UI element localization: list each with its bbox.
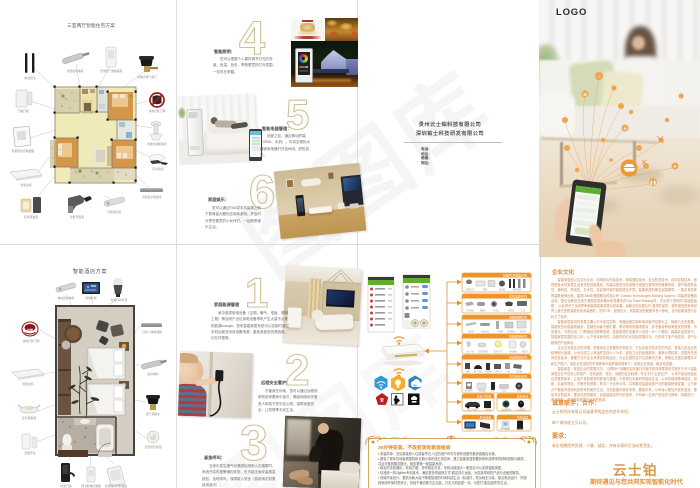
svg-text:智能窗帘电机: 智能窗帘电机 bbox=[67, 69, 84, 73]
svg-text:智能窗户机械手: 智能窗户机械手 bbox=[142, 195, 162, 199]
svg-text:红外转发器: 红外转发器 bbox=[22, 416, 36, 420]
svg-text:环境电器: 环境电器 bbox=[517, 416, 528, 420]
svg-text:机械手燃气阀门: 机械手燃气阀门 bbox=[137, 75, 157, 79]
svg-text:智能主机: 智能主机 bbox=[22, 382, 33, 386]
svg-text:智能开关: 智能开关 bbox=[24, 451, 35, 455]
svg-text:传感探测系列: 传感探测系列 bbox=[509, 355, 527, 360]
svg-text:智能场景控制面板: 智能场景控制面板 bbox=[12, 149, 35, 153]
svg-text:万能遥控器: 万能遥控器 bbox=[107, 210, 121, 214]
svg-text:智能门锁: 智能门锁 bbox=[60, 484, 71, 488]
svg-text:无线紧急按钮: 无线紧急按钮 bbox=[145, 445, 162, 449]
svg-text:影音设备: 影音设备 bbox=[480, 416, 491, 420]
svg-text:背景音乐系列: 背景音乐系列 bbox=[509, 374, 527, 379]
svg-text:智能水阀机械手: 智能水阀机械手 bbox=[147, 142, 167, 146]
svg-text:4G: 4G bbox=[413, 384, 418, 388]
svg-text:智能开窗器: 智能开窗器 bbox=[70, 215, 84, 219]
svg-text:智能照明系列: 智能照明系列 bbox=[509, 334, 527, 339]
svg-text:红外转发器: 红外转发器 bbox=[24, 215, 38, 219]
svg-text:无线燃气泄漏探测: 无线燃气泄漏探测 bbox=[100, 69, 123, 73]
svg-text:刷卡取电控制器: 刷卡取电控制器 bbox=[81, 484, 101, 488]
svg-text:安: 安 bbox=[380, 397, 384, 403]
svg-text:电动窗帘: 电动窗帘 bbox=[24, 76, 35, 80]
svg-text:电动窗帘电机: 电动窗帘电机 bbox=[58, 296, 75, 300]
svg-text:请勿打扰门牌: 请勿打扰门牌 bbox=[23, 339, 40, 343]
svg-text:智能LED灯泡: 智能LED灯泡 bbox=[111, 298, 128, 302]
svg-text:门磁门锁: 门磁门锁 bbox=[17, 109, 28, 113]
svg-text:☀: ☀ bbox=[623, 126, 627, 131]
svg-text:勿扰: 勿扰 bbox=[26, 327, 33, 332]
svg-text:三室两厅智能住宅方案: 三室两厅智能住宅方案 bbox=[67, 22, 115, 29]
svg-text:窗帘电机: 窗帘电机 bbox=[147, 372, 158, 376]
svg-text:监控系列: 监控系列 bbox=[517, 395, 528, 399]
svg-text:请勿打扰门牌: 请勿打扰门牌 bbox=[149, 109, 166, 113]
svg-text:智能开关插座系列: 智能开关插座系列 bbox=[503, 273, 527, 278]
svg-text:♪: ♪ bbox=[598, 74, 600, 79]
svg-text:燃气机械手: 燃气机械手 bbox=[146, 412, 160, 416]
svg-text:红外人体探测器: 红外人体探测器 bbox=[142, 330, 162, 334]
svg-text:智能酒店方案: 智能酒店方案 bbox=[73, 267, 107, 275]
svg-text:红外幕帘: 红外幕帘 bbox=[152, 167, 163, 171]
svg-text:终端控制: 终端控制 bbox=[85, 296, 96, 300]
svg-text:智能主机: 智能主机 bbox=[20, 183, 31, 187]
svg-text:智能场景控制面板: 智能场景控制面板 bbox=[105, 484, 128, 488]
svg-text:遮阳晾晒系列: 遮阳晾晒系列 bbox=[509, 315, 527, 320]
svg-text:车库门控制: 车库门控制 bbox=[477, 395, 491, 399]
svg-text:安防监控系列: 安防监控系列 bbox=[509, 294, 527, 299]
